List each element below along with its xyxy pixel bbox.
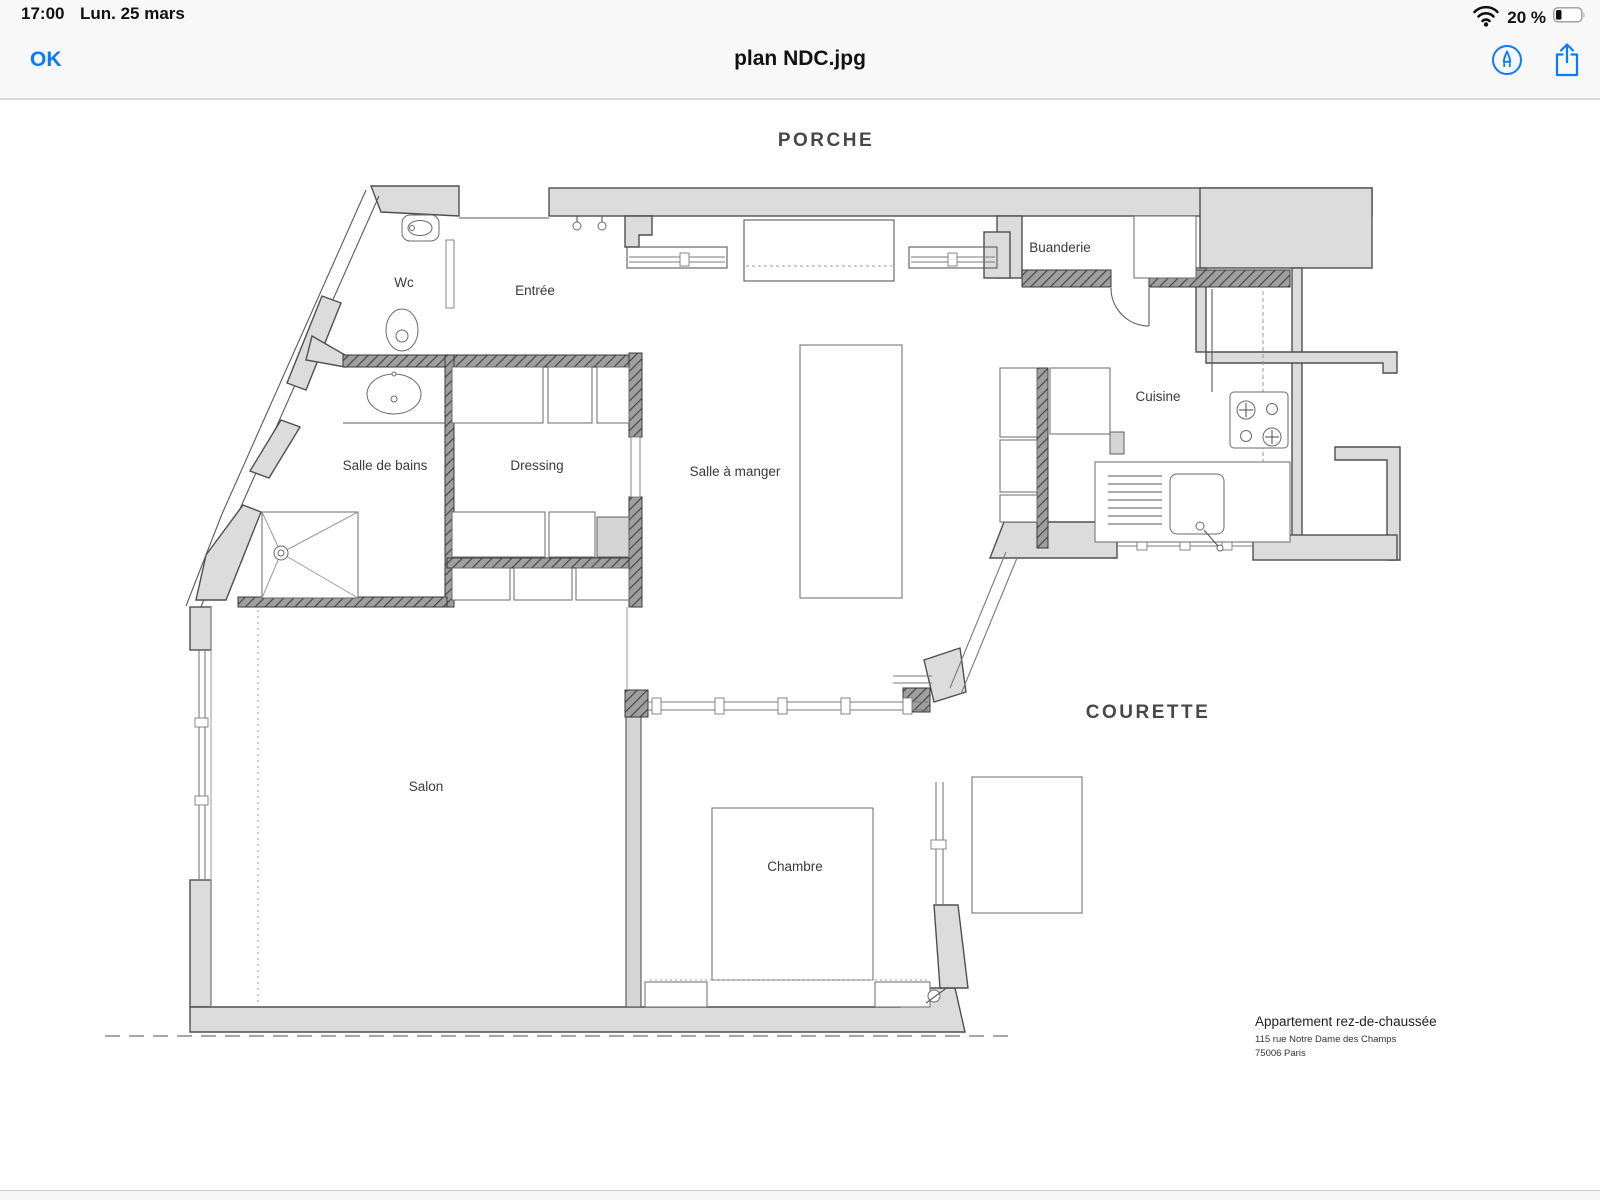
- fixtures: [262, 215, 1290, 1007]
- floor-plan-image: PORCHE COURETTE Wc Entrée Buanderie Sall…: [0, 100, 1600, 1192]
- wifi-icon: [1472, 2, 1500, 33]
- room-label-buanderie: Buanderie: [1029, 240, 1091, 255]
- status-bar: 17:00 Lun. 25 mars 20 %: [0, 0, 1600, 30]
- markup-icon[interactable]: [1490, 43, 1524, 77]
- room-label-salon: Salon: [409, 779, 444, 794]
- battery-icon: [1553, 7, 1586, 28]
- caption-title: Appartement rez-de-chaussée: [1255, 1014, 1437, 1029]
- caption-address-line2: 75006 Paris: [1255, 1048, 1306, 1059]
- room-label-dressing: Dressing: [510, 458, 563, 473]
- share-icon[interactable]: [1552, 42, 1582, 78]
- room-label-salle-de-bains: Salle de bains: [343, 458, 428, 473]
- battery-percent: 20 %: [1507, 8, 1546, 28]
- plan-labels: PORCHE COURETTE Wc Entrée Buanderie Sall…: [343, 130, 1211, 874]
- room-label-cuisine: Cuisine: [1135, 389, 1180, 404]
- status-date: Lun. 25 mars: [80, 4, 185, 24]
- plan-caption: Appartement rez-de-chaussée 115 rue Notr…: [1255, 1014, 1437, 1059]
- zone-label-courette: COURETTE: [1086, 702, 1211, 723]
- bottom-toolbar-edge: [0, 1190, 1600, 1200]
- room-label-entree: Entrée: [515, 283, 555, 298]
- caption-address-line1: 115 rue Notre Dame des Champs: [1255, 1034, 1397, 1045]
- floor-plan-drawing: PORCHE COURETTE Wc Entrée Buanderie Sall…: [0, 100, 1600, 1192]
- nav-bar: plan NDC.jpg OK: [0, 30, 1600, 98]
- room-label-chambre: Chambre: [767, 859, 823, 874]
- ok-button[interactable]: OK: [30, 48, 62, 72]
- status-time: 17:00: [21, 4, 64, 24]
- room-label-wc: Wc: [394, 275, 414, 290]
- top-chrome: 17:00 Lun. 25 mars 20 %: [0, 0, 1600, 100]
- room-label-salle-a-manger: Salle à manger: [690, 464, 781, 479]
- ipad-screen: 17:00 Lun. 25 mars 20 %: [0, 0, 1600, 1200]
- document-title: plan NDC.jpg: [0, 47, 1600, 71]
- zone-label-porche: PORCHE: [778, 130, 874, 151]
